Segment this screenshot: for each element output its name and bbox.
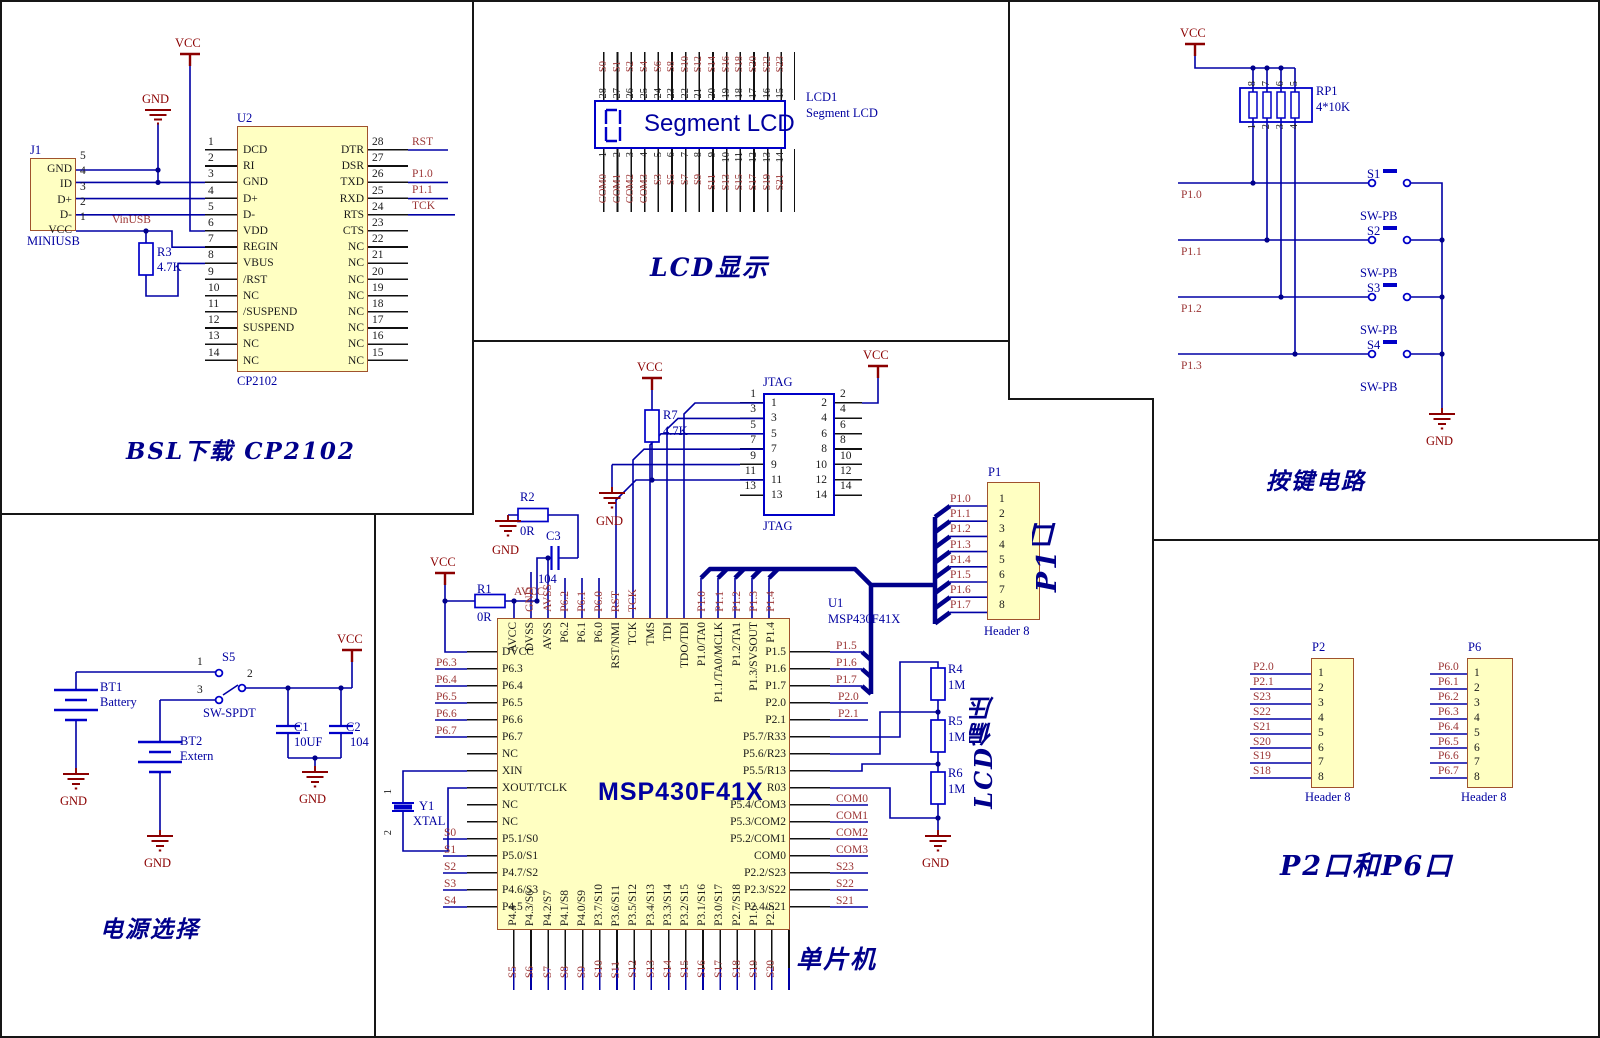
net-label: GND (525, 587, 537, 612)
net-label: P6.6 (436, 706, 457, 723)
net-label: S19 (1253, 749, 1274, 764)
pin-number: 15 (372, 345, 384, 361)
bt1-refdes: BT1 (100, 680, 122, 695)
p1-port-title: P1口 (1034, 520, 1061, 599)
pin-number: 3 (771, 411, 783, 426)
vcc-label-keys: VCC (1180, 26, 1206, 41)
pin-name: P1.6 (749, 905, 761, 926)
p1-net-labels: P1.0P1.1P1.2P1.3P1.4P1.5P1.6P1.7 (950, 492, 971, 614)
net-label: S13 (646, 960, 658, 978)
p6-refdes: P6 (1468, 640, 1481, 655)
s5-pin1-number: 1 (197, 656, 203, 668)
p6-pin-numbers: 12345678 (1474, 666, 1480, 785)
net-label: P1.6 (950, 583, 971, 598)
pin-name: DSR (264, 158, 364, 174)
pin-number: 8 (1318, 770, 1324, 785)
lcd-display-text: Segment LCD (644, 110, 795, 138)
net-label: S5 (667, 174, 678, 185)
gnd-label-keys: GND (1426, 434, 1453, 449)
pin-number: 3 (80, 180, 86, 195)
pin-name: NC (264, 304, 364, 320)
pin-number: 22 (681, 88, 692, 99)
pin-number: 25 (372, 183, 384, 199)
net-label: S0 (444, 825, 456, 842)
pin-number: 2 (1318, 681, 1324, 696)
switch-type-label: SW-PB (1360, 245, 1398, 302)
pin-name: P6.6 (502, 712, 567, 729)
pin-number: 26 (626, 88, 637, 99)
pin-number: 8 (800, 442, 827, 457)
c2-value: 104 (350, 735, 369, 750)
pin-name: P3.5/S12 (628, 884, 640, 926)
pin-number: 19 (722, 88, 733, 99)
pin-number: 23 (372, 215, 384, 231)
net-label: P1.7 (950, 598, 971, 613)
pin-name: AVSS (543, 622, 555, 650)
u2-right-pin-numbers: 2827262524232221201918171615 (372, 134, 384, 361)
net-label: P1.0 (950, 492, 971, 507)
net-label: P1.0 (1181, 167, 1202, 224)
gnd-label-jtag: GND (596, 514, 623, 529)
pin-number: 12 (840, 464, 852, 479)
net-label: P6.3 (436, 655, 457, 672)
vcc-label-r7: VCC (637, 360, 663, 375)
pin-name: ID (30, 177, 72, 192)
pin-number: 3 (1474, 696, 1480, 711)
net-label: P6.1 (577, 591, 589, 612)
rp1-refdes: RP1 (1316, 84, 1338, 99)
net-label: S23 (1253, 690, 1274, 705)
r3-refdes: R3 (157, 245, 172, 260)
pin-number: 4 (1474, 711, 1480, 726)
mcu-top-net-labels: GNDAVSSP6.2P6.1P6.0RSTTCK (523, 558, 643, 612)
r4-value: 1M (948, 678, 965, 693)
net-label: P6.3 (1438, 705, 1459, 720)
pin-number: 19 (372, 280, 384, 296)
net-label: P6.7 (436, 723, 457, 740)
pin-name: AVCC (508, 622, 520, 652)
net-label: S7 (681, 174, 692, 185)
pin-number: 1 (208, 134, 220, 150)
net-label: P6.1 (1438, 675, 1459, 690)
mcu-bottom-pin-names: P4.4P4.3/S6P4.2/S7P4.1/S8P4.0/S9P3.7/S10… (505, 840, 780, 926)
pin-name: TDO/TDI (680, 622, 692, 668)
jtag-right-inner-numbers: 2468101214 (800, 396, 827, 504)
pin-name: P3.1/S16 (697, 884, 709, 926)
net-label: P6.0 (594, 591, 606, 612)
pin-number: 9 (771, 458, 783, 473)
s5-type-label: SW-SPDT (203, 706, 256, 721)
pin-number: 5 (1474, 726, 1480, 741)
pin-number: 20 (372, 264, 384, 280)
pin-number: 11 (734, 464, 756, 479)
pin-number: 13 (208, 328, 220, 344)
pin-number: 10 (208, 280, 220, 296)
pin-name: TXD (264, 174, 364, 190)
pin-number: 8 (1248, 81, 1259, 86)
pin-number: 5 (999, 553, 1005, 568)
pin-name: P1.4 (766, 622, 778, 643)
pin-number: 6 (999, 568, 1005, 583)
pin-number: 18 (735, 88, 746, 99)
net-label: S15 (680, 960, 692, 978)
pin-number: 25 (640, 88, 651, 99)
net-label-tck: TCK (412, 200, 435, 212)
r6-refdes: R6 (948, 766, 963, 781)
net-label: P1.1 (950, 507, 971, 522)
bt2-name: Extern (180, 749, 213, 764)
net-label: P1.3 (950, 538, 971, 553)
mcu-right-p1-net-labels: P1.5P1.6P1.7 (836, 638, 857, 689)
net-label: COM1 (836, 808, 868, 825)
pin-number: 12 (208, 312, 220, 328)
net-label: P2.0 (838, 689, 859, 706)
net-label: COM2 (836, 825, 868, 842)
pin-number: 1 (599, 152, 610, 157)
r1-refdes: R1 (477, 582, 492, 597)
bt1-name: Battery (100, 695, 137, 710)
net-label: S8 (560, 966, 572, 978)
gnd-label-caps: GND (299, 792, 326, 807)
pin-number: 14 (208, 345, 220, 361)
pin-name: P5.4/COM3 (646, 797, 786, 814)
pin-number: 1 (1248, 124, 1259, 129)
pin-name: P3.4/S13 (646, 884, 658, 926)
net-label: P2.1 (838, 706, 859, 723)
mcu-left-s-net-labels: S0S1S2S3S4 (444, 825, 456, 910)
pin-name: P2.5 (766, 905, 778, 926)
net-label: S18 (732, 960, 744, 978)
pin-number: 28 (599, 88, 610, 99)
jtag-left-outer-numbers: 135791113 (734, 387, 756, 495)
pin-number: 3 (1318, 696, 1324, 711)
gnd-label-bias: GND (922, 856, 949, 871)
pin-name: TMS (646, 622, 658, 646)
net-label: S13 (722, 174, 733, 190)
net-label: S22 (836, 876, 868, 893)
net-label: P6.5 (1438, 735, 1459, 750)
net-label: S19 (763, 174, 774, 190)
net-label: S3 (654, 174, 665, 185)
pin-number: 5 (771, 427, 783, 442)
pin-number: 6 (800, 427, 827, 442)
net-label: P2.1 (1253, 675, 1274, 690)
net-label: COM3 (640, 174, 651, 203)
pin-number: 7 (208, 231, 220, 247)
y1-type-label: XTAL (413, 814, 445, 829)
pin-number: 7 (999, 583, 1005, 598)
pin-name: NC (264, 320, 364, 336)
pin-name: P3.0/S17 (714, 884, 726, 926)
pin-number: 3 (734, 402, 756, 417)
pin-name: CTS (264, 223, 364, 239)
pin-number: 15 (776, 88, 787, 99)
section-title-keys: 按键电路 (1266, 462, 1366, 496)
pin-number: 5 (734, 418, 756, 433)
net-label: S22 (1253, 705, 1274, 720)
pin-number: 24 (372, 199, 384, 215)
pin-number: 4 (999, 538, 1005, 553)
rp1-bottom-pin-numbers: 1234 (1246, 124, 1302, 129)
pin-number: 4 (1318, 711, 1324, 726)
rp1-top-pin-numbers: 8765 (1246, 66, 1302, 86)
c2-refdes: C2 (346, 720, 361, 735)
pin-number: 7 (681, 152, 692, 157)
net-label: S3 (444, 876, 456, 893)
net-label: P2.0 (1253, 660, 1274, 675)
u2-right-pin-names: DTRDSRTXDRXDRTSCTSNCNCNCNCNCNCNCNC (264, 142, 364, 369)
net-label: TCK (628, 589, 640, 612)
net-label: P6.4 (1438, 720, 1459, 735)
pin-number: 7 (1474, 755, 1480, 770)
net-label: S17 (749, 174, 760, 190)
pin-number: 27 (372, 150, 384, 166)
pin-name: P3.6/S11 (611, 885, 623, 926)
pin-name: NC (264, 255, 364, 271)
p2-pin-numbers: 12345678 (1318, 666, 1324, 785)
pin-number: 10 (800, 458, 827, 473)
pin-number: 12 (800, 473, 827, 488)
pin-number: 11 (735, 152, 746, 162)
u2-refdes: U2 (237, 111, 252, 126)
pin-number: 7 (1318, 755, 1324, 770)
pin-name: P4.1/S8 (560, 890, 572, 926)
y1-pin2-number: 2 (384, 822, 395, 840)
lcd-bottom-net-labels: COM0COM1COM2COM3S3S5S7S9S11S13S15S17S19S… (597, 174, 788, 203)
pin-name: DTR (264, 142, 364, 158)
pin-number: 3 (626, 152, 637, 157)
net-label: S20 (1253, 735, 1274, 750)
mcu-right-com-net-labels: COM0COM1COM2COM3S23S22S21 (836, 791, 868, 910)
section-title-mcu: 单片机 (796, 940, 877, 976)
pin-name: D- (30, 208, 72, 223)
pin-name: P1.1/TA0/MCLK (714, 622, 726, 703)
pin-name: P5.3/COM2 (646, 814, 786, 831)
net-label: S5 (508, 966, 520, 978)
pin-name: R03 (646, 780, 786, 797)
pin-number: 1 (999, 492, 1005, 507)
pin-number: 5 (1318, 726, 1324, 741)
s5-pin3-number: 3 (197, 684, 203, 696)
pin-name: RTS (264, 207, 364, 223)
keys-net-labels: P1.0P1.1P1.2P1.3 (1181, 167, 1202, 395)
pin-number: 6 (667, 152, 678, 157)
r3-value: 4.7K (157, 260, 182, 275)
pin-number: 11 (208, 296, 220, 312)
pin-name: P4.3/S6 (525, 890, 537, 926)
pin-number: 21 (372, 247, 384, 263)
net-label: S6 (525, 966, 537, 978)
jtag-label-bottom: JTAG (763, 519, 793, 534)
p2-net-labels: P2.0P2.1S23S22S21S20S19S18 (1253, 660, 1274, 779)
pin-number: 5 (1290, 81, 1301, 86)
pin-number: 13 (771, 488, 783, 503)
net-label: P1.1 (1181, 224, 1202, 281)
pin-number: 7 (771, 442, 783, 457)
pin-number: 1 (734, 387, 756, 402)
pin-number: 3 (208, 166, 220, 182)
j1-refdes: J1 (30, 143, 41, 158)
pin-name: NC (264, 288, 364, 304)
p1-pin-numbers: 12345678 (999, 492, 1005, 614)
pin-number: 12 (749, 152, 760, 163)
net-label: S14 (663, 960, 675, 978)
net-label: P1.1 (715, 591, 727, 612)
pin-name: P3.7/S10 (594, 884, 606, 926)
net-label: P1.3 (749, 591, 761, 612)
pin-number: 6 (208, 215, 220, 231)
pin-number: 1 (771, 396, 783, 411)
net-label: RST (611, 591, 623, 612)
net-label: P6.6 (1438, 749, 1459, 764)
pin-name: P1.3/SVSOUT (749, 622, 761, 691)
net-label: P1.4 (950, 553, 971, 568)
pin-number: 1 (1318, 666, 1324, 681)
net-label: P1.2 (950, 522, 971, 537)
net-label: P1.7 (836, 672, 857, 689)
net-label: S16 (697, 960, 709, 978)
pin-number: 5 (654, 152, 665, 157)
pin-number: 3 (999, 522, 1005, 537)
u2-part-label: CP2102 (237, 374, 277, 389)
r5-value: 1M (948, 730, 965, 745)
c1-refdes: C1 (294, 720, 309, 735)
y1-refdes: Y1 (419, 799, 434, 814)
j1-pin-names: GNDIDD+D-VCC (30, 162, 72, 238)
pin-name: GND (30, 162, 72, 177)
pin-number: 6 (1318, 741, 1324, 756)
pin-number: 6 (1276, 81, 1287, 86)
pin-number: 8 (208, 247, 220, 263)
pin-name: XIN (502, 763, 567, 780)
pin-number: 26 (372, 166, 384, 182)
lcd-top-pin-numbers: 2827262524232221201918171615 (597, 58, 788, 98)
net-label: S23 (836, 859, 868, 876)
net-label: S4 (444, 893, 456, 910)
lcd-bottom-pin-numbers: 1234567891011121314 (597, 152, 788, 163)
net-label: S21 (776, 174, 787, 190)
net-label: P1.5 (950, 568, 971, 583)
net-label: P6.5 (436, 689, 457, 706)
pin-name: P2.1 (646, 712, 786, 729)
net-label: S11 (708, 174, 719, 190)
net-label: S12 (628, 960, 640, 978)
pin-number: 6 (1474, 741, 1480, 756)
switch-type-label: SW-PB (1360, 188, 1398, 245)
pin-number: 4 (208, 183, 220, 199)
switch-type-label: SW-PB (1360, 302, 1398, 359)
pin-number: 2 (80, 195, 86, 210)
pin-number: 22 (372, 231, 384, 247)
pin-number: 6 (840, 418, 852, 433)
pin-number: 8 (999, 598, 1005, 613)
pin-number: 9 (734, 449, 756, 464)
pin-name: NC (502, 797, 567, 814)
pin-number: 14 (840, 479, 852, 494)
net-label: P1.2 (732, 591, 744, 612)
net-label: P1.2 (1181, 281, 1202, 338)
pin-number: 23 (667, 88, 678, 99)
net-label: P1.4 (766, 591, 778, 612)
pin-number: 1 (1474, 666, 1480, 681)
pin-number: 4 (1290, 124, 1301, 129)
net-label: S21 (836, 893, 868, 910)
pin-number: 18 (372, 296, 384, 312)
vcc-label-bsl: VCC (175, 36, 201, 51)
p6-type-label: Header 8 (1461, 790, 1506, 805)
u1-refdes: U1 (828, 596, 843, 611)
pin-number: 9 (708, 152, 719, 157)
pin-name: TCK (628, 622, 640, 645)
j1-pin-numbers: 54321 (80, 149, 86, 225)
net-label: S9 (694, 174, 705, 185)
net-label: P1.6 (836, 655, 857, 672)
net-label-vinusb: VinUSB (112, 214, 151, 226)
pin-number: 21 (694, 88, 705, 99)
net-label: S2 (444, 859, 456, 876)
pin-name: NC (264, 239, 364, 255)
pin-name: P3.2/S15 (680, 884, 692, 926)
r4-refdes: R4 (948, 662, 963, 677)
p1-type-label: Header 8 (984, 624, 1029, 639)
pin-number: 14 (800, 488, 827, 503)
net-label: AVSS (543, 584, 555, 612)
segment-lcd-icon (606, 110, 620, 141)
pin-name: P6.1 (577, 622, 589, 643)
rp1-value: 4*10K (1316, 100, 1350, 115)
net-label: COM1 (613, 174, 624, 203)
pin-number: 10 (840, 449, 852, 464)
net-label-p1-1: P1.1 (412, 184, 433, 196)
net-label: P1.3 (1181, 338, 1202, 395)
pin-name: P1.0/TA0 (697, 622, 709, 666)
jtag-label-top: JTAG (763, 375, 793, 390)
pin-name: XOUT/TCLK (502, 780, 567, 797)
net-label: COM2 (626, 174, 637, 203)
net-label: P6.0 (1438, 660, 1459, 675)
pin-number: 4 (80, 164, 86, 179)
pin-name: P4.2/S7 (543, 890, 555, 926)
pin-name: P6.7 (502, 729, 567, 746)
lcd-bias-title: LCD偏压 (972, 694, 996, 815)
net-label: P1.0 (697, 591, 709, 612)
pin-name: VCC (30, 223, 72, 238)
pin-number: 13 (734, 479, 756, 494)
pin-number: 8 (1474, 770, 1480, 785)
section-title-bsl: BSL下载 CP2102 (126, 432, 356, 466)
mcu-left-p6-net-labels: P6.3P6.4P6.5P6.6P6.7 (436, 655, 457, 740)
pin-name: TDI (663, 622, 675, 641)
keys-switch-types: SW-PBSW-PBSW-PBSW-PB (1360, 188, 1398, 416)
pin-name: P2.7/S18 (732, 884, 744, 926)
pin-name: P5.7/R33 (646, 729, 786, 746)
pin-number: 20 (708, 88, 719, 99)
y1-pin1-number: 1 (384, 781, 395, 799)
s5-pin2-number: 2 (247, 668, 253, 680)
mcu-p1-top-net-labels: P1.0P1.1P1.2P1.3P1.4 (695, 558, 781, 612)
r6-value: 1M (948, 782, 965, 797)
r7-value: 4.7K (663, 424, 688, 439)
pin-number: 2 (208, 150, 220, 166)
gnd-label-bt2: GND (144, 856, 171, 871)
net-label: P6.2 (560, 591, 572, 612)
r1-value: 0R (477, 610, 492, 625)
lcd1-refdes: LCD1 (806, 90, 837, 105)
pin-number: 1 (80, 210, 86, 225)
pin-number: 17 (749, 88, 760, 99)
vcc-label-mcu-left: VCC (430, 555, 456, 570)
u2-left-pin-numbers: 1234567891011121314 (208, 134, 220, 361)
